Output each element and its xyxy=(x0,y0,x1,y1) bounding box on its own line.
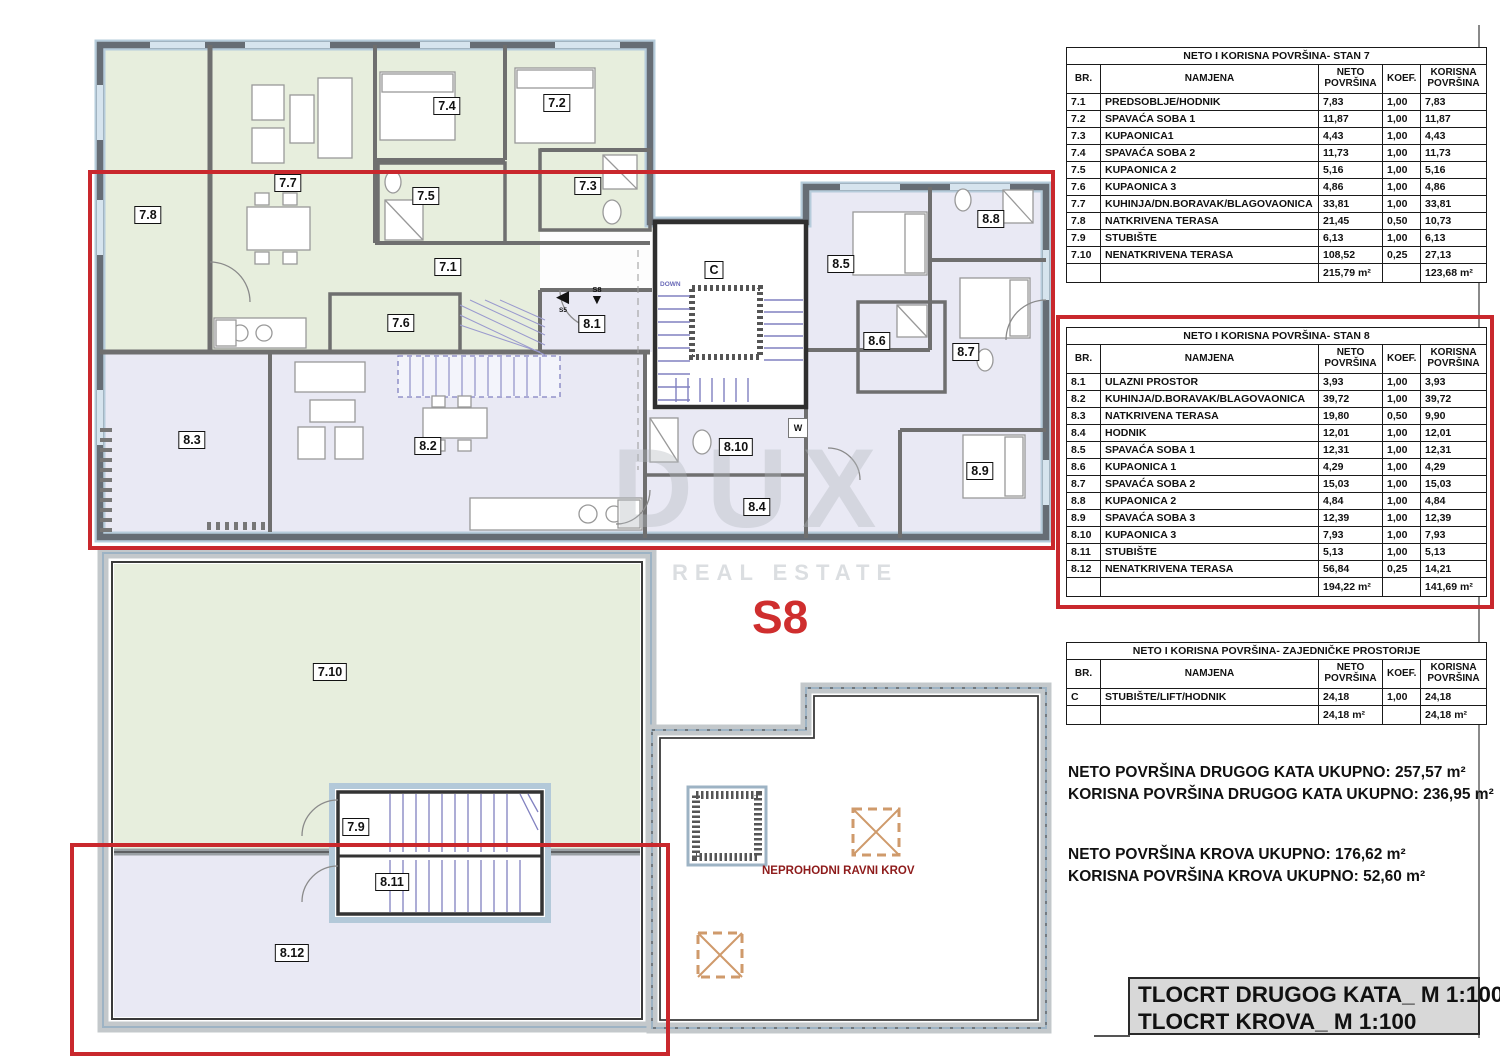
table-cell: 1,00 xyxy=(1383,230,1421,247)
table-cell: 0,50 xyxy=(1383,213,1421,230)
table-cell: 12,01 xyxy=(1421,425,1487,442)
table-cell: 7,83 xyxy=(1421,94,1487,111)
table-cell: 5,16 xyxy=(1421,162,1487,179)
table-cell: 11,73 xyxy=(1421,145,1487,162)
table-stan8: NETO I KORISNA POVRŠINA- STAN 8BR.NAMJEN… xyxy=(1066,327,1486,597)
table-cell: SPAVAĆA SOBA 1 xyxy=(1101,442,1319,459)
table-row: 8.10KUPAONICA 37,931,007,93 xyxy=(1067,527,1487,544)
table-cell: 8.2 xyxy=(1067,391,1101,408)
table-cell: 123,68 m² xyxy=(1421,264,1487,283)
elevator-shaft xyxy=(692,288,760,357)
unit-marker-s8: S8 xyxy=(752,590,808,644)
table-cell: 33,81 xyxy=(1421,196,1487,213)
table-cell: 1,00 xyxy=(1383,442,1421,459)
table-cell: 24,18 xyxy=(1319,689,1383,706)
entrance-arrow-left-icon: ◀S5 xyxy=(556,288,569,305)
table-row: 7.10NENATKRIVENA TERASA108,520,2527,13 xyxy=(1067,247,1487,264)
table-cell xyxy=(1101,706,1319,725)
table-cell: BR. xyxy=(1067,660,1101,689)
table-cell: 6,13 xyxy=(1421,230,1487,247)
table-cell: 1,00 xyxy=(1383,179,1421,196)
table-cell: NAMJENA xyxy=(1101,345,1319,374)
title-block-line-1: TLOCRT DRUGOG KATA_ M 1:100 xyxy=(1138,981,1478,1008)
summary-line-2: KORISNA POVRŠINA DRUGOG KATA UKUPNO: 236… xyxy=(1068,784,1494,806)
table-cell: 4,43 xyxy=(1319,128,1383,145)
table-row: 7.9STUBIŠTE6,131,006,13 xyxy=(1067,230,1487,247)
table-cell: 6,13 xyxy=(1319,230,1383,247)
table-cell: 3,93 xyxy=(1319,374,1383,391)
table-cell: KUPAONICA 3 xyxy=(1101,527,1319,544)
sheet-border-tick xyxy=(1094,1035,1130,1037)
table-cell: 12,31 xyxy=(1319,442,1383,459)
table-cell: 1,00 xyxy=(1383,94,1421,111)
table-cell: 215,79 m² xyxy=(1319,264,1383,283)
table-row: 8.4HODNIK12,011,0012,01 xyxy=(1067,425,1487,442)
table-cell: 1,00 xyxy=(1383,425,1421,442)
table-cell: 7,83 xyxy=(1319,94,1383,111)
table-cell: 4,86 xyxy=(1421,179,1487,196)
table-row: 8.2KUHINJA/D.BORAVAK/BLAGOVAONICA39,721,… xyxy=(1067,391,1487,408)
table-cell: SPAVAĆA SOBA 2 xyxy=(1101,476,1319,493)
summary-line-1: NETO POVRŠINA DRUGOG KATA UKUPNO: 257,57… xyxy=(1068,762,1494,784)
room-label-8-3: 8.3 xyxy=(178,431,205,449)
table-row: 7.1PREDSOBLJE/HODNIK7,831,007,83 xyxy=(1067,94,1487,111)
table-row: 8.6KUPAONICA 14,291,004,29 xyxy=(1067,459,1487,476)
room-label-8-9: 8.9 xyxy=(966,462,993,480)
table-cell: 11,87 xyxy=(1421,111,1487,128)
table-cell: 0,25 xyxy=(1383,247,1421,264)
room-label-7-4: 7.4 xyxy=(433,97,460,115)
table-row: 7.3KUPAONICA14,431,004,43 xyxy=(1067,128,1487,145)
table-row: 7.2SPAVAĆA SOBA 111,871,0011,87 xyxy=(1067,111,1487,128)
table-cell: 15,03 xyxy=(1319,476,1383,493)
table-cell: 0,25 xyxy=(1383,561,1421,578)
table-header-row: BR.NAMJENANETO POVRŠINAKOEF.KORISNA POVR… xyxy=(1067,65,1487,94)
table-cell: 8.3 xyxy=(1067,408,1101,425)
room-label-7-6: 7.6 xyxy=(387,314,414,332)
table-cell: 7.3 xyxy=(1067,128,1101,145)
table-cell: 1,00 xyxy=(1383,689,1421,706)
table-cell: 8.6 xyxy=(1067,459,1101,476)
table-cell: 0,50 xyxy=(1383,408,1421,425)
table-cell: 8.11 xyxy=(1067,544,1101,561)
table-cell: 11,87 xyxy=(1319,111,1383,128)
table-cell: 4,84 xyxy=(1421,493,1487,510)
room-label-8-4: 8.4 xyxy=(743,498,770,516)
table-cell: NENATKRIVENA TERASA xyxy=(1101,247,1319,264)
room-label-8-1: 8.1 xyxy=(578,315,605,333)
table-cell: 1,00 xyxy=(1383,493,1421,510)
table-row: 8.11STUBIŠTE5,131,005,13 xyxy=(1067,544,1487,561)
table-cell: 7.4 xyxy=(1067,145,1101,162)
table-cell: 56,84 xyxy=(1319,561,1383,578)
table-cell: 1,00 xyxy=(1383,510,1421,527)
table-cell: ULAZNI PROSTOR xyxy=(1101,374,1319,391)
room-label-8-2: 8.2 xyxy=(414,437,441,455)
table-header-row: BR.NAMJENANETO POVRŠINAKOEF.KORISNA POVR… xyxy=(1067,660,1487,689)
table-cell: 4,43 xyxy=(1421,128,1487,145)
title-block: TLOCRT DRUGOG KATA_ M 1:100 TLOCRT KROVA… xyxy=(1128,977,1480,1035)
area-summary: NETO POVRŠINA DRUGOG KATA UKUPNO: 257,57… xyxy=(1068,762,1494,888)
table-cell: 7.5 xyxy=(1067,162,1101,179)
summary-line-3: NETO POVRŠINA KROVA UKUPNO: 176,62 m² xyxy=(1068,844,1494,866)
room-label-8-6: 8.6 xyxy=(863,332,890,350)
table-cell: 1,00 xyxy=(1383,459,1421,476)
table-cell xyxy=(1067,578,1101,597)
table-cell: NETO I KORISNA POVRŠINA- STAN 8 xyxy=(1067,328,1487,345)
table-total-row: 194,22 m²141,69 m² xyxy=(1067,578,1487,597)
table-cell: 3,93 xyxy=(1421,374,1487,391)
table-cell: 5,13 xyxy=(1421,544,1487,561)
table-cell xyxy=(1067,264,1101,283)
table-cell: 19,80 xyxy=(1319,408,1383,425)
room-label-7-3: 7.3 xyxy=(574,177,601,195)
down-arrow-glyph: ▼ xyxy=(590,293,604,305)
room-label-7-10: 7.10 xyxy=(313,663,347,681)
table-cell: 1,00 xyxy=(1383,544,1421,561)
table-cell: STUBIŠTE xyxy=(1101,230,1319,247)
table-cell: 4,29 xyxy=(1319,459,1383,476)
table-cell: 141,69 m² xyxy=(1421,578,1487,597)
table-cell: 21,45 xyxy=(1319,213,1383,230)
table-cell: 7.9 xyxy=(1067,230,1101,247)
table-cell: 4,86 xyxy=(1319,179,1383,196)
table-cell: KOEF. xyxy=(1383,65,1421,94)
table-cell xyxy=(1067,706,1101,725)
table-cell: 1,00 xyxy=(1383,196,1421,213)
table-cell: 8.1 xyxy=(1067,374,1101,391)
room-label-8-7: 8.7 xyxy=(952,343,979,361)
table-cell xyxy=(1101,578,1319,597)
table-row: 8.1ULAZNI PROSTOR3,931,003,93 xyxy=(1067,374,1487,391)
table-cell: 1,00 xyxy=(1383,527,1421,544)
table-cell: 12,31 xyxy=(1421,442,1487,459)
table-row: 8.3NATKRIVENA TERASA19,800,509,90 xyxy=(1067,408,1487,425)
table-cell: 194,22 m² xyxy=(1319,578,1383,597)
table-cell: 8.7 xyxy=(1067,476,1101,493)
table-cell: 7.10 xyxy=(1067,247,1101,264)
room-label-7-1: 7.1 xyxy=(434,258,461,276)
table-cell: 7.8 xyxy=(1067,213,1101,230)
table-header-row: BR.NAMJENANETO POVRŠINAKOEF.KORISNA POVR… xyxy=(1067,345,1487,374)
watermark-subtitle: REAL ESTATE xyxy=(672,560,898,586)
table-cell: 9,90 xyxy=(1421,408,1487,425)
room-label-8-10: 8.10 xyxy=(719,438,753,456)
table-row: 8.7SPAVAĆA SOBA 215,031,0015,03 xyxy=(1067,476,1487,493)
table-cell: 11,73 xyxy=(1319,145,1383,162)
floorplan-drawing xyxy=(0,0,1060,1061)
title-block-line-2: TLOCRT KROVA_ M 1:100 xyxy=(1138,1008,1478,1035)
table-cell: 4,29 xyxy=(1421,459,1487,476)
room-label-8-5: 8.5 xyxy=(827,255,854,273)
table-cell: 1,00 xyxy=(1383,162,1421,179)
table-row: CSTUBIŠTE/LIFT/HODNIK24,181,0024,18 xyxy=(1067,689,1487,706)
table-cell: 24,18 m² xyxy=(1421,706,1487,725)
table-cell: NETO I KORISNA POVRŠINA- ZAJEDNIČKE PROS… xyxy=(1067,643,1487,660)
table-cell: KOEF. xyxy=(1383,345,1421,374)
area-table-grid: NETO I KORISNA POVRŠINA- STAN 7BR.NAMJEN… xyxy=(1066,47,1487,283)
table-cell: KORISNA POVRŠINA xyxy=(1421,345,1487,374)
table-cell: SPAVAĆA SOBA 2 xyxy=(1101,145,1319,162)
entrance-arrow-left-label: S5 xyxy=(559,302,567,319)
table-cell: NATKRIVENA TERASA xyxy=(1101,408,1319,425)
table-stan7: NETO I KORISNA POVRŠINA- STAN 7BR.NAMJEN… xyxy=(1066,47,1486,283)
room-label-7-8: 7.8 xyxy=(134,206,161,224)
table-cell: 8.9 xyxy=(1067,510,1101,527)
second-floor-plan xyxy=(100,38,1046,538)
table-cell: KUPAONICA 2 xyxy=(1101,162,1319,179)
table-row: 7.5KUPAONICA 25,161,005,16 xyxy=(1067,162,1487,179)
table-cell: 108,52 xyxy=(1319,247,1383,264)
table-cell: SPAVAĆA SOBA 1 xyxy=(1101,111,1319,128)
table-cell: 1,00 xyxy=(1383,128,1421,145)
summary-line-4: KORISNA POVRŠINA KROVA UKUPNO: 52,60 m² xyxy=(1068,866,1494,888)
stairs-down-label: DOWN xyxy=(660,281,681,288)
table-cell: 1,00 xyxy=(1383,476,1421,493)
table-cell: 8.5 xyxy=(1067,442,1101,459)
area-table-grid: NETO I KORISNA POVRŠINA- STAN 8BR.NAMJEN… xyxy=(1066,327,1487,597)
table-cell: KOEF. xyxy=(1383,660,1421,689)
table-cell: BR. xyxy=(1067,65,1101,94)
table-row: 8.9SPAVAĆA SOBA 312,391,0012,39 xyxy=(1067,510,1487,527)
table-cell: KORISNA POVRŠINA xyxy=(1421,660,1487,689)
table-cell: KUHINJA/D.BORAVAK/BLAGOVAONICA xyxy=(1101,391,1319,408)
table-title-row: NETO I KORISNA POVRŠINA- STAN 7 xyxy=(1067,48,1487,65)
table-cell: 1,00 xyxy=(1383,111,1421,128)
room-label-7-5: 7.5 xyxy=(412,187,439,205)
room-label-c: C xyxy=(704,261,723,279)
table-cell: KUHINJA/DN.BORAVAK/BLAGOVAONICA xyxy=(1101,196,1319,213)
table-cell: STUBIŠTE/LIFT/HODNIK xyxy=(1101,689,1319,706)
table-cell: C xyxy=(1067,689,1101,706)
table-total-row: 215,79 m²123,68 m² xyxy=(1067,264,1487,283)
table-title-row: NETO I KORISNA POVRŠINA- STAN 8 xyxy=(1067,328,1487,345)
table-cell: NENATKRIVENA TERASA xyxy=(1101,561,1319,578)
table-cell: KUPAONICA 2 xyxy=(1101,493,1319,510)
table-cell: 7.1 xyxy=(1067,94,1101,111)
summary-gap xyxy=(1068,806,1494,844)
table-cell: 39,72 xyxy=(1421,391,1487,408)
table-cell: NETO POVRŠINA xyxy=(1319,660,1383,689)
room-label-7-2: 7.2 xyxy=(543,94,570,112)
table-cell: NATKRIVENA TERASA xyxy=(1101,213,1319,230)
room-label-7-9: 7.9 xyxy=(342,818,369,836)
table-cell: 27,13 xyxy=(1421,247,1487,264)
table-row: 7.6KUPAONICA 34,861,004,86 xyxy=(1067,179,1487,196)
room-label-7-7: 7.7 xyxy=(274,174,301,192)
table-common: NETO I KORISNA POVRŠINA- ZAJEDNIČKE PROS… xyxy=(1066,642,1486,725)
room-label-8-11: 8.11 xyxy=(375,873,409,891)
table-cell: 5,16 xyxy=(1319,162,1383,179)
table-cell: 8.4 xyxy=(1067,425,1101,442)
table-cell: 15,03 xyxy=(1421,476,1487,493)
table-cell: PREDSOBLJE/HODNIK xyxy=(1101,94,1319,111)
table-cell: 8.12 xyxy=(1067,561,1101,578)
roof-stair-shaft xyxy=(302,786,548,920)
table-cell: 33,81 xyxy=(1319,196,1383,213)
table-row: 8.8KUPAONICA 24,841,004,84 xyxy=(1067,493,1487,510)
table-cell: 1,00 xyxy=(1383,391,1421,408)
table-cell: 7.2 xyxy=(1067,111,1101,128)
table-cell: HODNIK xyxy=(1101,425,1319,442)
table-cell: NAMJENA xyxy=(1101,65,1319,94)
table-cell: 7.7 xyxy=(1067,196,1101,213)
floorplan-sheet: 7.4 7.2 7.8 7.7 7.5 7.3 7.1 7.6 8.8 8.5 … xyxy=(0,0,1500,1061)
table-cell: NETO POVRŠINA xyxy=(1319,65,1383,94)
table-cell xyxy=(1383,578,1421,597)
entrance-arrow-down-icon: S8 ▼ xyxy=(590,286,604,305)
table-cell: 1,00 xyxy=(1383,145,1421,162)
table-row: 7.4SPAVAĆA SOBA 211,731,0011,73 xyxy=(1067,145,1487,162)
table-row: 8.12NENATKRIVENA TERASA56,840,2514,21 xyxy=(1067,561,1487,578)
table-cell: 24,18 m² xyxy=(1319,706,1383,725)
room-label-8-8: 8.8 xyxy=(977,210,1004,228)
table-cell: 7.6 xyxy=(1067,179,1101,196)
table-cell: 5,13 xyxy=(1319,544,1383,561)
table-cell: STUBIŠTE xyxy=(1101,544,1319,561)
table-total-row: 24,18 m²24,18 m² xyxy=(1067,706,1487,725)
table-cell: SPAVAĆA SOBA 3 xyxy=(1101,510,1319,527)
table-cell: 8.8 xyxy=(1067,493,1101,510)
table-cell: KUPAONICA 1 xyxy=(1101,459,1319,476)
washing-machine-box: W xyxy=(788,418,808,438)
roof-chimney xyxy=(688,787,766,865)
table-cell: BR. xyxy=(1067,345,1101,374)
table-cell xyxy=(1383,264,1421,283)
table-row: 7.7KUHINJA/DN.BORAVAK/BLAGOVAONICA33,811… xyxy=(1067,196,1487,213)
table-cell: 7,93 xyxy=(1421,527,1487,544)
table-cell: 12,39 xyxy=(1319,510,1383,527)
table-cell: KUPAONICA1 xyxy=(1101,128,1319,145)
table-cell xyxy=(1101,264,1319,283)
table-cell: NAMJENA xyxy=(1101,660,1319,689)
table-cell: 39,72 xyxy=(1319,391,1383,408)
table-row: 7.8NATKRIVENA TERASA21,450,5010,73 xyxy=(1067,213,1487,230)
table-cell: 12,39 xyxy=(1421,510,1487,527)
table-cell: 7,93 xyxy=(1319,527,1383,544)
room-label-8-12: 8.12 xyxy=(275,944,309,962)
table-cell: 24,18 xyxy=(1421,689,1487,706)
table-cell: NETO I KORISNA POVRŠINA- STAN 7 xyxy=(1067,48,1487,65)
table-cell: 12,01 xyxy=(1319,425,1383,442)
roof-note: NEPROHODNI RAVNI KROV xyxy=(762,864,922,878)
table-title-row: NETO I KORISNA POVRŠINA- ZAJEDNIČKE PROS… xyxy=(1067,643,1487,660)
table-cell: NETO POVRŠINA xyxy=(1319,345,1383,374)
table-cell: 14,21 xyxy=(1421,561,1487,578)
table-row: 8.5SPAVAĆA SOBA 112,311,0012,31 xyxy=(1067,442,1487,459)
table-cell: KORISNA POVRŠINA xyxy=(1421,65,1487,94)
area-table-grid: NETO I KORISNA POVRŠINA- ZAJEDNIČKE PROS… xyxy=(1066,642,1487,725)
table-cell: 8.10 xyxy=(1067,527,1101,544)
table-cell: 10,73 xyxy=(1421,213,1487,230)
table-cell: 4,84 xyxy=(1319,493,1383,510)
stairs-overhead xyxy=(398,356,560,397)
table-cell xyxy=(1383,706,1421,725)
table-cell: KUPAONICA 3 xyxy=(1101,179,1319,196)
table-cell: 1,00 xyxy=(1383,374,1421,391)
